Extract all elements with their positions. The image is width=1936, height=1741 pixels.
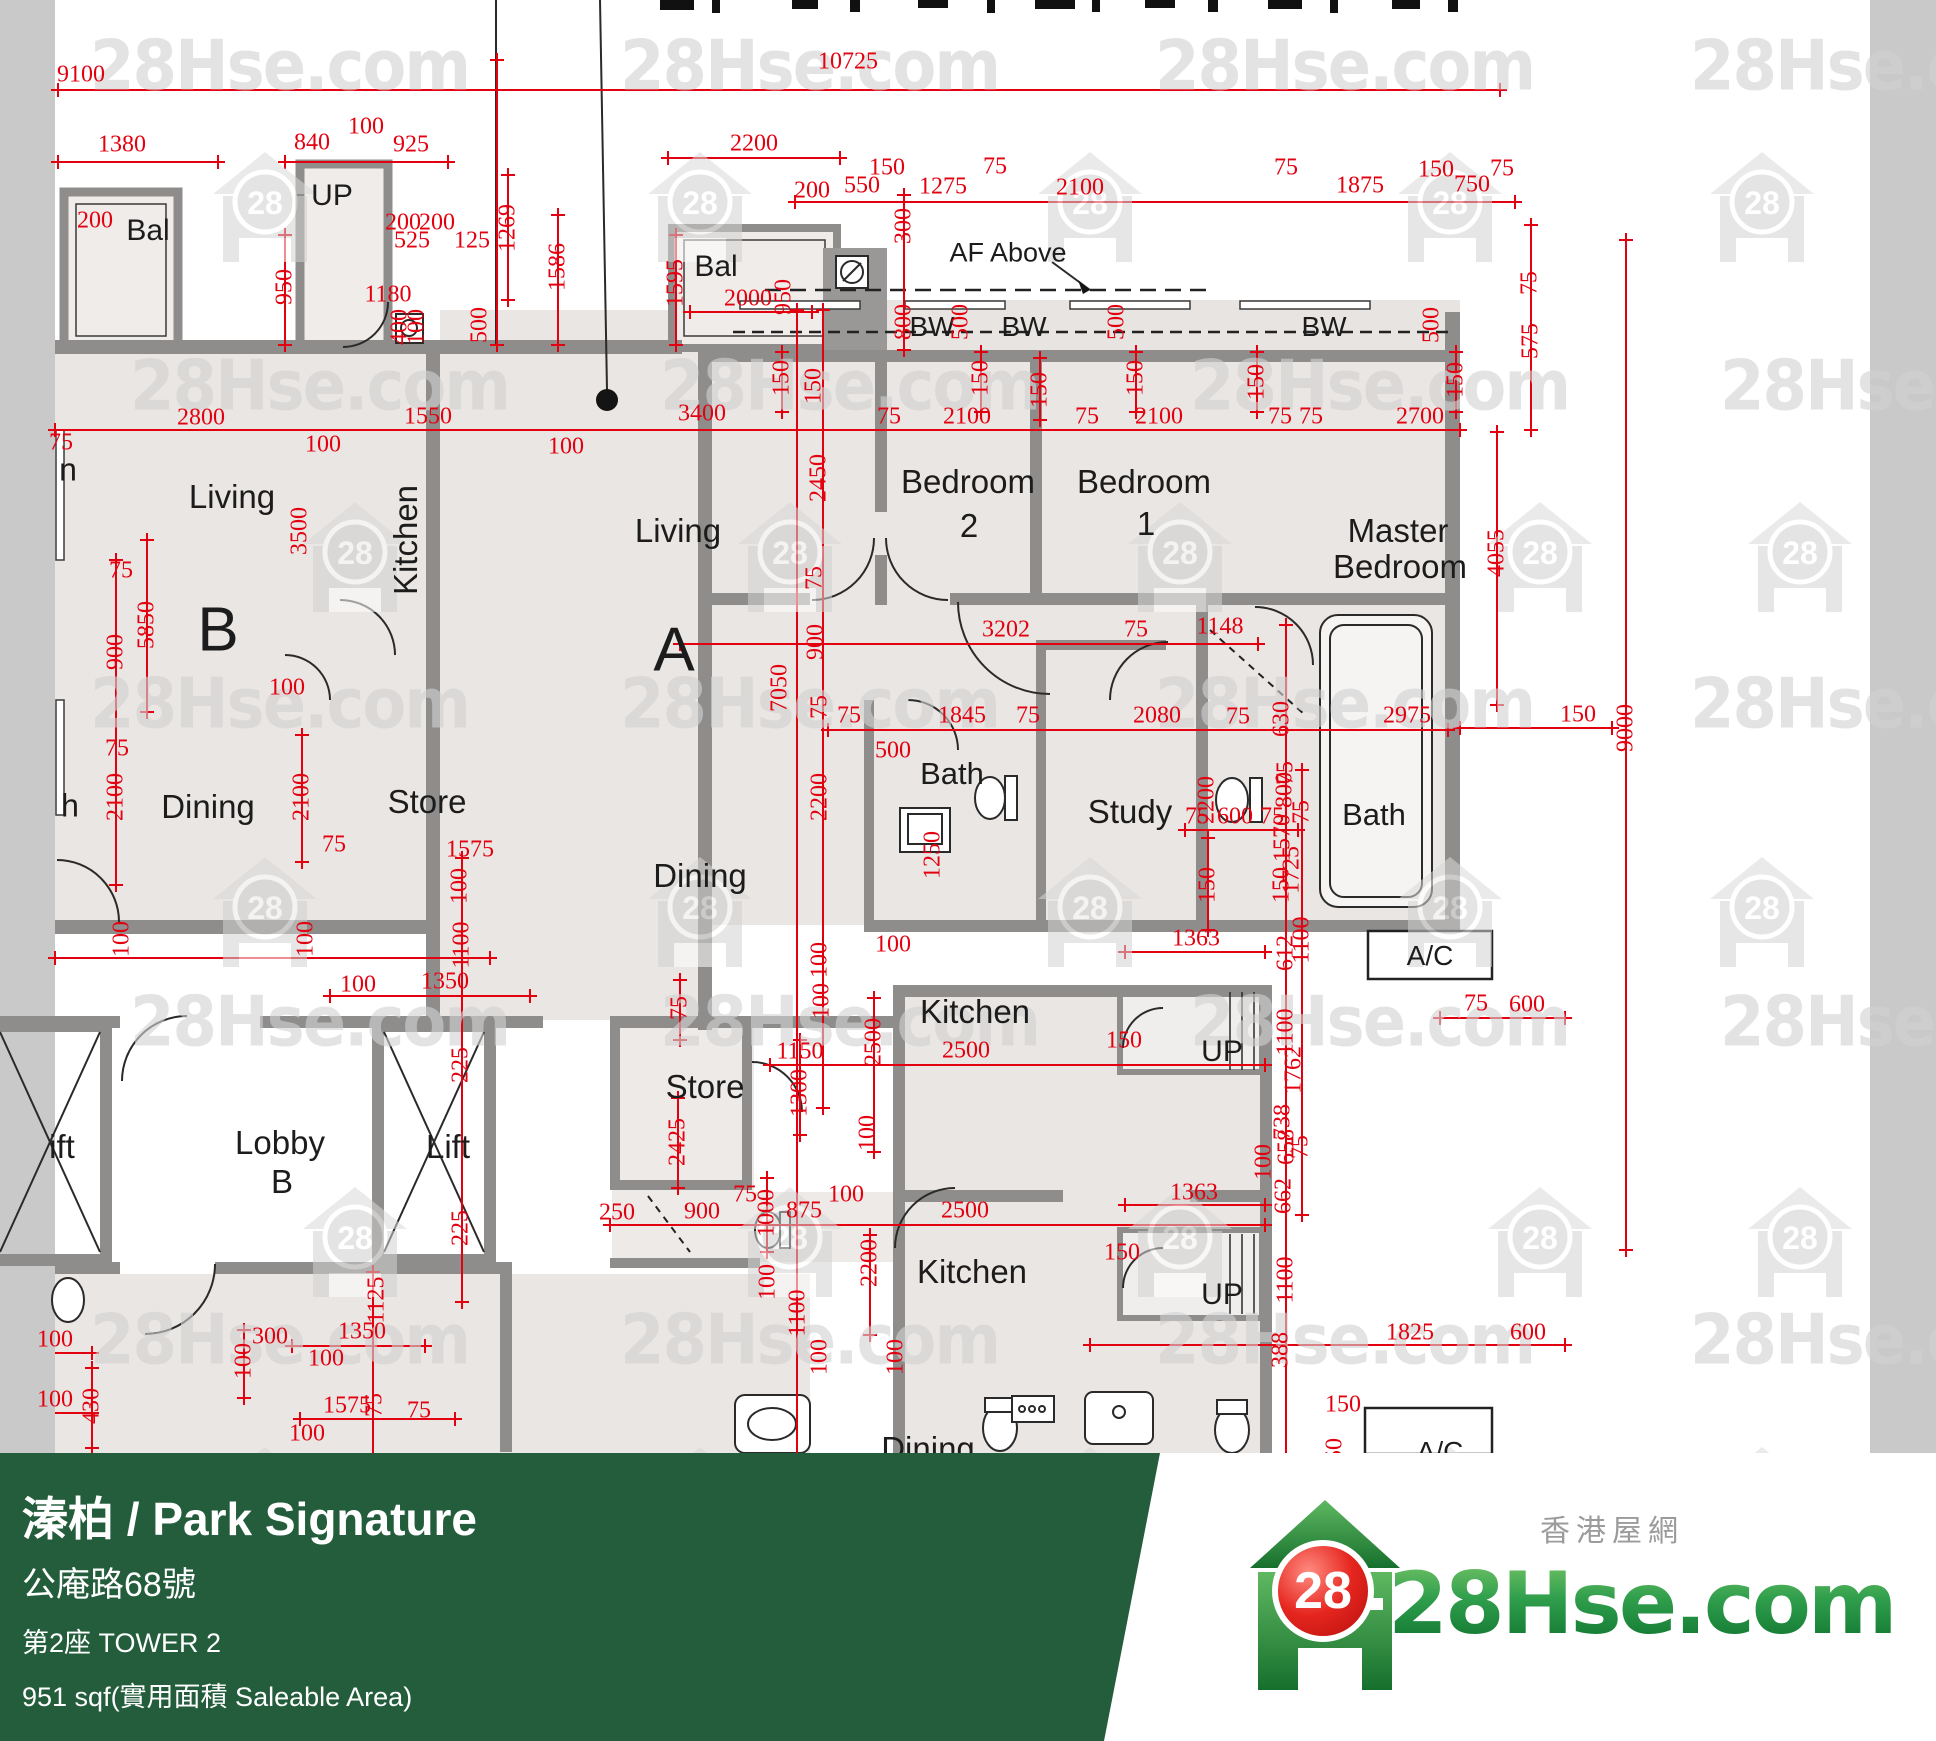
logo-wordmark: 28Hse.com: [1388, 1554, 1895, 1654]
clipped-top-text: [660, 0, 1458, 13]
floorplan-drawing: [0, 0, 1936, 1453]
ac-boxes: [1365, 931, 1492, 1453]
logo-tagline: 香港屋網: [1540, 1506, 1684, 1550]
tower-label: 第2座 TOWER 2: [22, 1621, 221, 1660]
reference-dot: [596, 389, 618, 411]
estate-address: 公庵路68號: [22, 1557, 196, 1606]
saleable-area-label: 951 sqf(實用面積 Saleable Area): [22, 1675, 412, 1714]
estate-title: 溱柏 / Park Signature: [22, 1483, 477, 1549]
logo-badge-number: 28: [1294, 1562, 1352, 1620]
leader-arrowhead: [1078, 280, 1090, 294]
floorplan-page: 28Hse.com28Hse.com28Hse.com28Hse.com28Hs…: [0, 0, 1936, 1741]
site-logo[interactable]: 28 香港屋網 28Hse.com: [1250, 1498, 1810, 1728]
